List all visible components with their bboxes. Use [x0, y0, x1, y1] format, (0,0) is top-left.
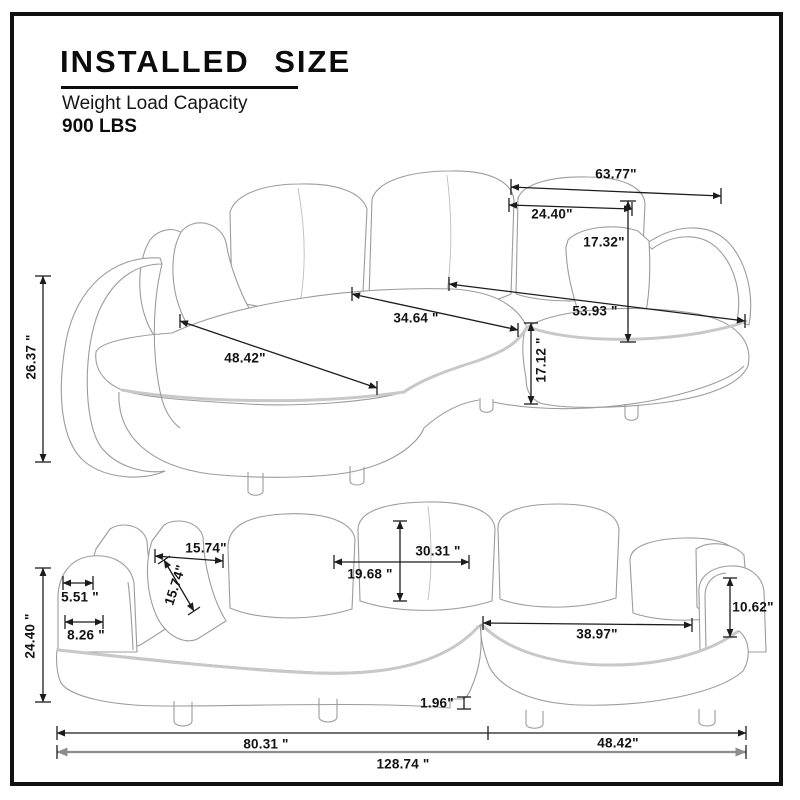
top-leg-1 — [248, 472, 263, 495]
dim-overall-height-label: 24.40 " — [23, 613, 38, 658]
dim-section-widths — [57, 726, 746, 740]
top-chaise-body — [523, 308, 749, 407]
top-back-pillow-1 — [230, 184, 367, 308]
dim-left-section-width-label: 80.31 " — [243, 737, 288, 752]
sofa-dimension-drawing — [0, 0, 800, 800]
dim-right-arm-height-label: 10.62" — [732, 600, 773, 615]
dim-seat-height-label: 17.12 " — [534, 337, 549, 382]
dim-right-pillow-height-label: 17.32" — [583, 235, 624, 250]
dim-arm-top-width-label: 5.51 " — [61, 590, 99, 605]
dim-total-width-label: 128.74 " — [376, 757, 429, 772]
dim-right-seat-width-label: 38.97" — [576, 627, 617, 642]
front-back-pillow-1 — [228, 514, 355, 618]
front-leg-4 — [699, 709, 715, 726]
dim-back-width-label: 63.77" — [595, 167, 636, 182]
top-leg-2 — [350, 466, 364, 485]
front-back-pillow-3 — [498, 504, 619, 607]
dim-chaise-length-label: 53.93 " — [572, 304, 617, 319]
dim-back-cushion-height-label: 19.68 " — [347, 567, 392, 582]
dim-arm-height-label: 26.37 " — [24, 334, 39, 379]
dim-right-pillow-width-label: 24.40" — [531, 207, 572, 222]
front-view-sofa — [56, 502, 766, 728]
diagram-page: INSTALLED SIZE Weight Load Capacity 900 … — [0, 0, 800, 800]
dim-seat-depth-label: 34.64 " — [393, 311, 438, 326]
front-leg-3 — [526, 710, 543, 728]
dim-left-seat-width-label: 48.42" — [224, 351, 265, 366]
dim-right-section-width-label: 48.42" — [597, 736, 638, 751]
dim-pillow-top-width-label: 15.74" — [185, 541, 226, 556]
dim-back-cushion-width-label: 30.31 " — [415, 544, 460, 559]
dim-base-step-label: 1.96" — [420, 696, 454, 711]
top-leg-3 — [480, 398, 493, 412]
dim-arm-width-label: 8.26 " — [67, 628, 105, 643]
top-view-sofa — [61, 171, 750, 495]
